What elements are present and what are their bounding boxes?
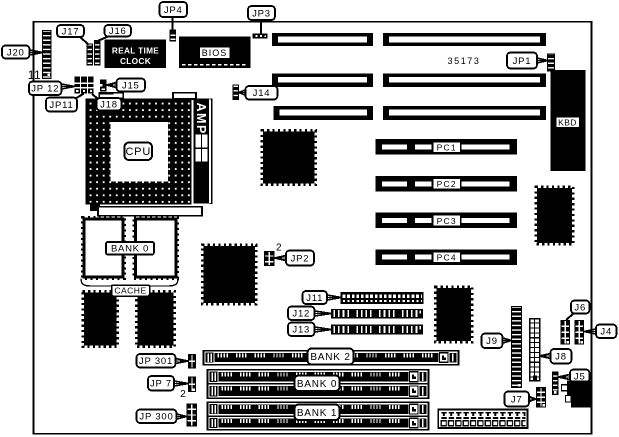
svg-text:J13: J13 [292, 325, 310, 336]
svg-text:J11: J11 [306, 293, 323, 304]
svg-text:J8: J8 [555, 352, 567, 363]
svg-text:JP2: JP2 [291, 253, 310, 264]
svg-text:CLOCK: CLOCK [120, 56, 151, 66]
svg-text:BANK 1: BANK 1 [297, 408, 337, 419]
svg-text:PC1: PC1 [437, 143, 457, 153]
svg-text:J7: J7 [511, 394, 523, 405]
svg-text:JP 301: JP 301 [139, 356, 173, 367]
svg-text:J20: J20 [7, 47, 25, 58]
svg-text:BANK 0: BANK 0 [297, 379, 337, 390]
svg-text:KBD: KBD [558, 117, 577, 127]
svg-text:REAL TIME: REAL TIME [112, 46, 159, 56]
svg-text:PC3: PC3 [437, 216, 457, 226]
svg-text:JP3: JP3 [252, 8, 271, 19]
svg-text:J4: J4 [600, 327, 612, 338]
svg-text:35173: 35173 [447, 56, 480, 66]
svg-text:J18: J18 [100, 100, 118, 111]
svg-text:AMP: AMP [194, 103, 208, 135]
svg-text:J12: J12 [292, 309, 310, 320]
svg-text:JP 7: JP 7 [150, 379, 172, 390]
svg-text:CPU: CPU [125, 146, 151, 158]
svg-text:J14: J14 [253, 88, 271, 99]
svg-text:J17: J17 [62, 26, 80, 37]
svg-text:J15: J15 [122, 80, 140, 91]
svg-text:J6: J6 [574, 302, 586, 313]
svg-text:BIOS: BIOS [202, 48, 228, 58]
svg-text:JP11: JP11 [49, 100, 73, 111]
svg-text:PC2: PC2 [437, 179, 457, 189]
svg-text:JP4: JP4 [164, 5, 183, 16]
svg-text:JP 12: JP 12 [31, 84, 59, 95]
svg-text:2: 2 [180, 389, 186, 400]
svg-text:J16: J16 [109, 26, 127, 37]
svg-text:11: 11 [28, 68, 41, 82]
svg-text:BANK 2: BANK 2 [310, 352, 350, 363]
svg-text:JP1: JP1 [513, 56, 532, 67]
svg-text:CACHE: CACHE [114, 286, 146, 296]
svg-text:J9: J9 [486, 336, 498, 347]
svg-text:PC4: PC4 [437, 253, 457, 263]
svg-text:2: 2 [276, 243, 282, 254]
svg-text:JP 300: JP 300 [139, 412, 173, 423]
svg-text:BANK 0: BANK 0 [111, 244, 149, 255]
